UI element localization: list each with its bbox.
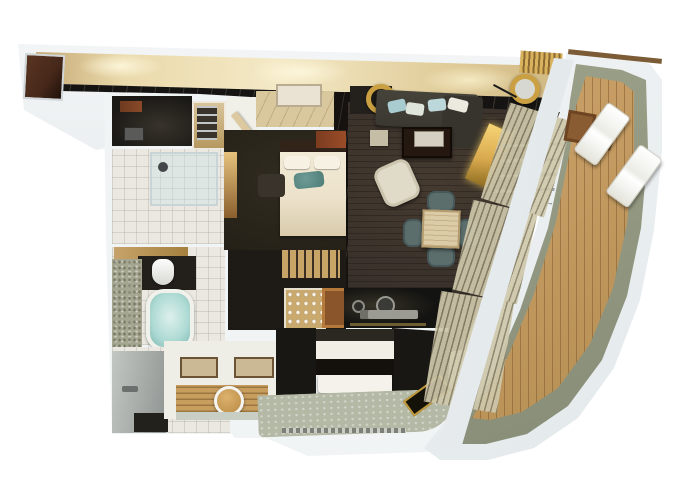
dressing-table-1 [180,357,218,378]
dining-table [421,209,460,248]
dining-chair-south [427,246,455,267]
cube-side-table [370,130,388,146]
second-bed-black-band [316,359,394,375]
second-bed-pillows [316,329,394,341]
shelf-unit [282,250,340,278]
rust-panel [316,131,346,148]
glass-shower [150,152,218,206]
toilet [152,259,174,285]
master-pillow-left [284,156,310,169]
console-table [276,84,322,107]
sofa-pillow-3 [427,98,446,112]
floorplan-stage [0,0,680,486]
serving-tray [414,131,444,147]
second-bedroom-carpet-left [276,328,316,402]
shower-head-icon [158,162,168,172]
master-pillow-right [314,156,340,169]
arc-floor-lamp-right [510,74,540,104]
dressing-floor-sliver [176,412,268,420]
second-bed-sheet [316,341,394,359]
hull-vent-strip [282,428,406,433]
control-panel [360,310,418,319]
vanity-faucet [122,386,138,392]
lit-closet [224,152,237,218]
teal-throw [293,170,325,189]
sofa-pillow-2 [405,102,424,116]
tv-panel [120,101,142,112]
dressing-table-2 [234,357,274,378]
corridor-door [23,53,65,101]
ottoman [258,174,285,197]
bath-mat [134,413,168,432]
bar-glassware [284,288,326,330]
screen-panel [124,127,144,141]
bar-underglow [350,323,426,326]
hangers [197,106,217,140]
